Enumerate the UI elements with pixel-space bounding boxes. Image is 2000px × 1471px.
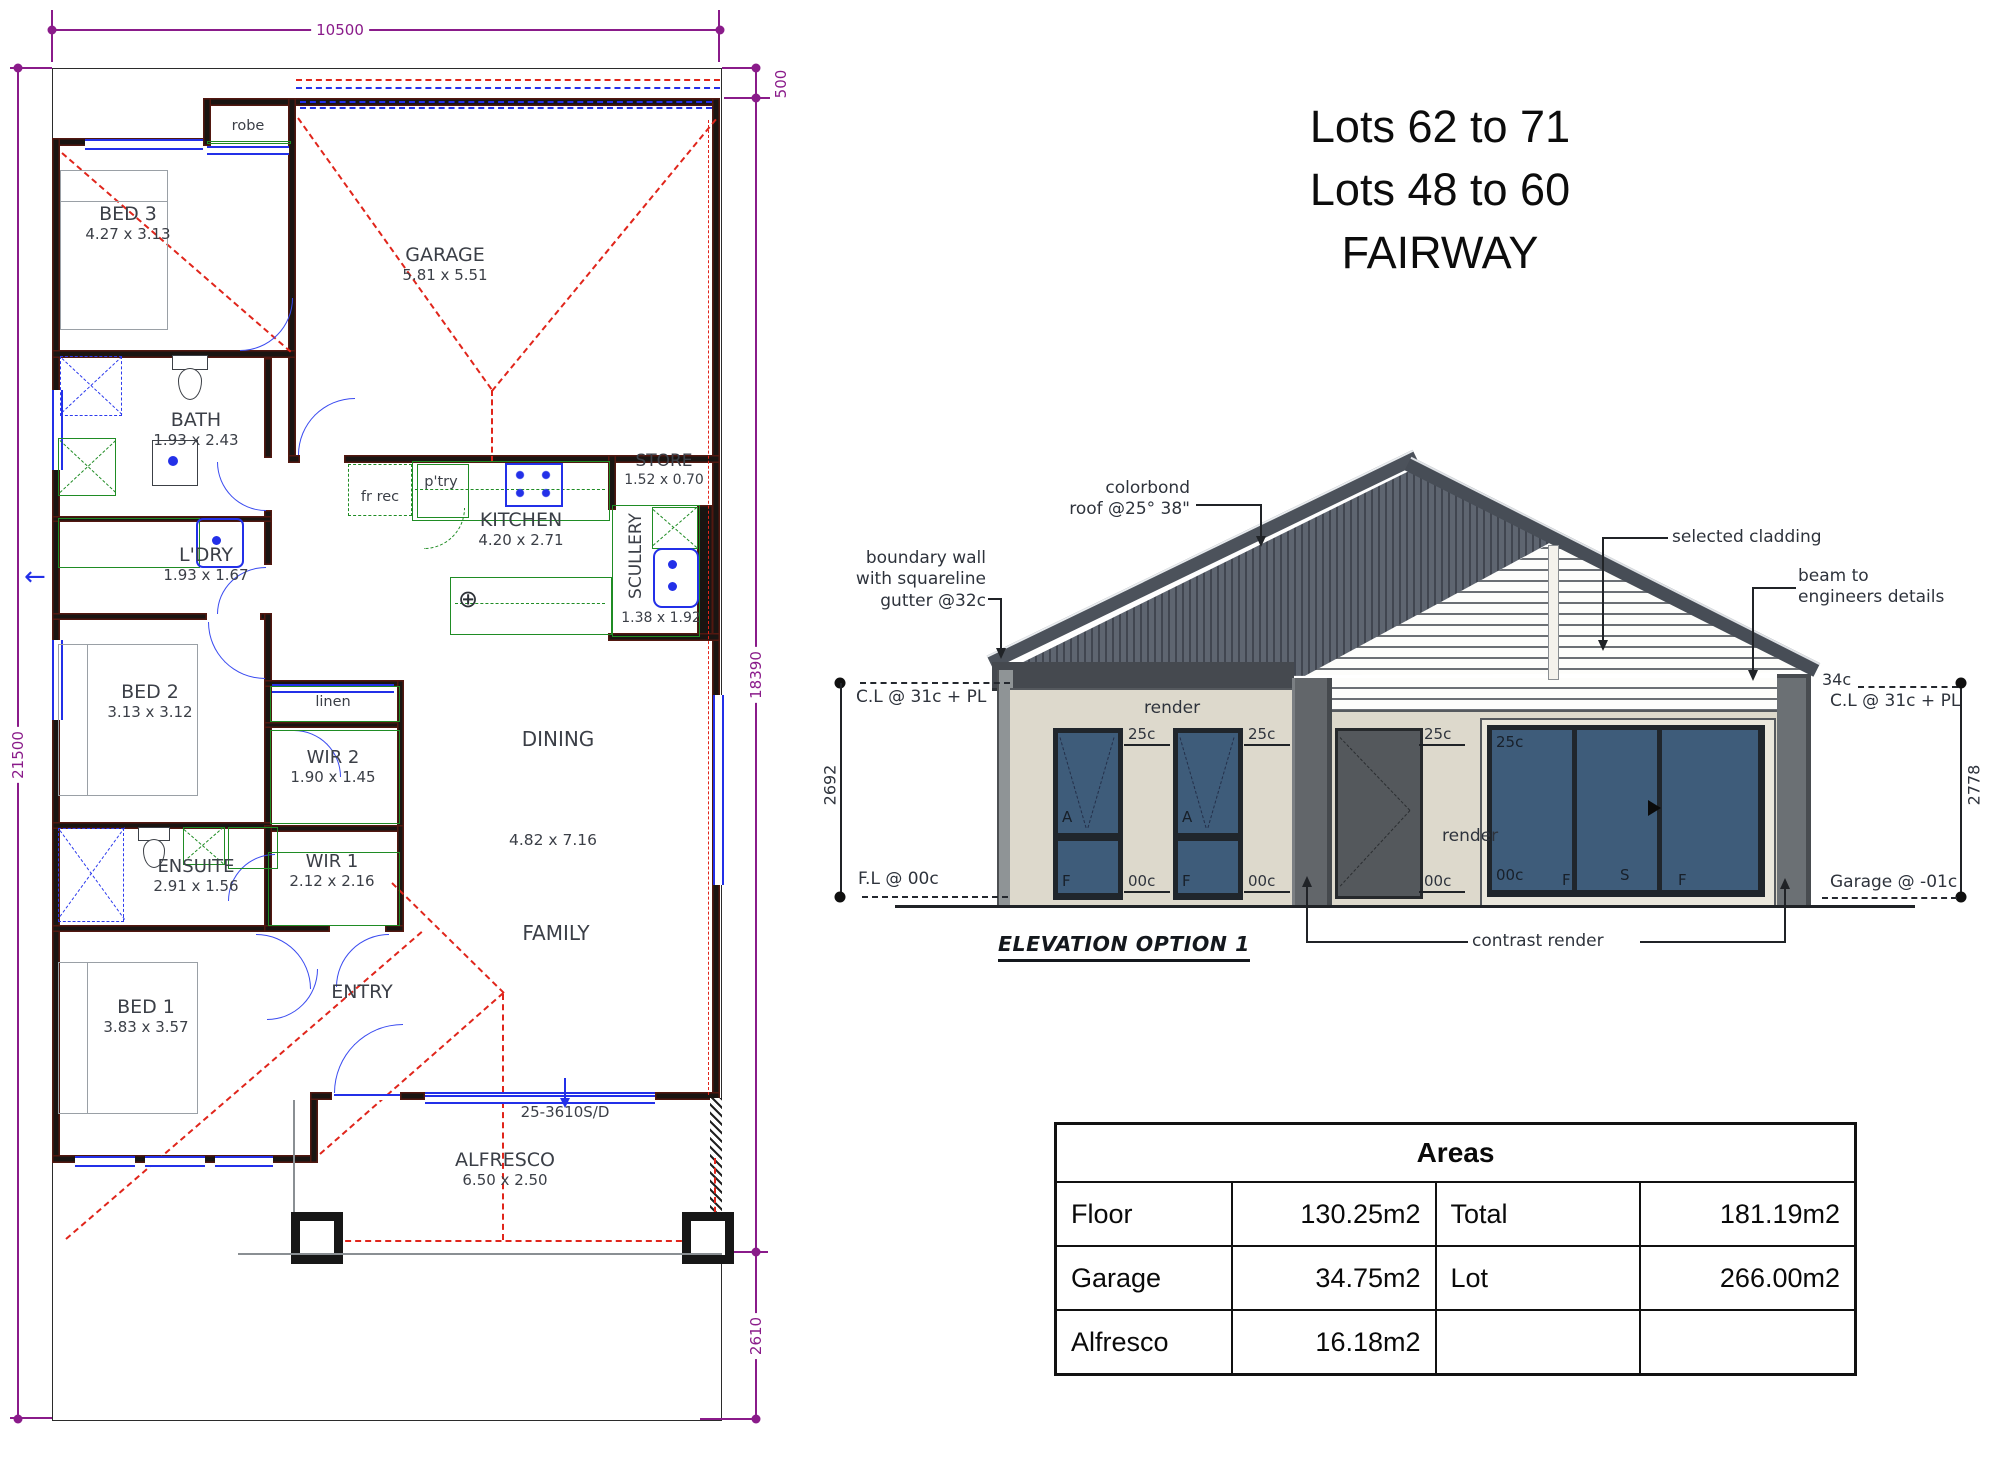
area-label: Total xyxy=(1436,1182,1640,1246)
leader-line xyxy=(1784,886,1786,943)
entry-door xyxy=(1335,728,1423,899)
room-name: KITCHEN xyxy=(478,510,563,532)
boundary-roof-line xyxy=(708,120,709,1095)
room-name: ALFRESCO xyxy=(455,1150,555,1172)
window xyxy=(85,139,203,150)
title-line-3: FAIRWAY xyxy=(1150,221,1730,284)
sliding-door-rail xyxy=(425,1095,655,1097)
wall xyxy=(310,1092,318,1163)
roof-line xyxy=(491,390,493,462)
dim-right-value: 18390 xyxy=(747,647,765,703)
callout-contrast: contrast render xyxy=(1472,931,1604,952)
basin-drain xyxy=(168,456,178,466)
window-tag-fixed: F xyxy=(1062,872,1071,890)
cladding-band xyxy=(1332,678,1777,714)
callout-text: beam to xyxy=(1798,566,1944,587)
parapet-line xyxy=(1858,686,1958,688)
area-value: 130.25m2 xyxy=(1232,1182,1436,1246)
sliding-arrow xyxy=(1648,800,1661,816)
wall xyxy=(52,925,280,932)
table-row: Floor 130.25m2 Total 181.19m2 xyxy=(1056,1182,1856,1246)
leader-line xyxy=(1308,941,1468,943)
room-name: GARAGE xyxy=(402,245,487,267)
leader-line xyxy=(1752,587,1754,673)
island-sink-symbol: ⊕ xyxy=(458,585,478,613)
wall xyxy=(400,1092,425,1100)
boundary-wall-hatch xyxy=(710,1098,722,1216)
room-size: 6.50 x 2.50 xyxy=(455,1172,555,1189)
garage-door-line xyxy=(300,107,712,109)
ceiling-level-line xyxy=(860,682,1010,684)
leader-arrow xyxy=(1256,536,1266,547)
alfresco-post xyxy=(682,1212,734,1264)
room-label-entry: ENTRY xyxy=(331,982,392,1004)
window-tag-awning: A xyxy=(1062,808,1072,826)
bed-pillow xyxy=(60,170,168,202)
sill-mark-line xyxy=(1244,891,1290,893)
scullery-sink xyxy=(653,548,699,608)
callout-text: gutter @32c xyxy=(856,591,986,612)
head-mark-line xyxy=(1124,744,1170,746)
leader-line xyxy=(1260,504,1262,538)
wall xyxy=(712,98,720,1100)
title-line-2: Lots 48 to 60 xyxy=(1150,158,1730,221)
window-tag-fixed: F xyxy=(1182,872,1191,890)
leader-arrow xyxy=(1302,876,1312,887)
room-label-ptry: p'try xyxy=(424,474,457,491)
level-dot xyxy=(835,892,846,903)
room-label-family: FAMILY xyxy=(522,922,589,945)
dim-left-value: 21500 xyxy=(9,727,27,783)
wall xyxy=(264,825,404,832)
head-mark-line xyxy=(1419,744,1465,746)
room-name: BED 1 xyxy=(103,997,188,1019)
setback-line xyxy=(296,79,720,81)
room-label-wir1: WIR 12.12 x 2.16 xyxy=(289,852,374,890)
window-tag-awning: A xyxy=(1182,808,1192,826)
callout-cladding: selected cladding xyxy=(1672,527,1822,548)
bed-pillow xyxy=(58,644,88,796)
room-size: 1.52 x 0.70 xyxy=(624,472,704,488)
wall-height-dim: 2692 xyxy=(821,765,840,806)
room-label-fr-rec: fr rec xyxy=(361,489,399,506)
leader-line xyxy=(1640,941,1784,943)
cooktop xyxy=(505,463,563,507)
eave-line xyxy=(238,1253,722,1255)
area-value: 181.19m2 xyxy=(1640,1182,1856,1246)
contrast-pillar xyxy=(1777,674,1811,906)
callout-colorbond: colorbond roof @25° 38" xyxy=(1069,478,1190,521)
leader-arrow xyxy=(1598,640,1608,651)
window-tag-fixed: F xyxy=(1678,871,1687,889)
room-size: 1.93 x 2.43 xyxy=(153,432,238,449)
room-size: 2.12 x 2.16 xyxy=(289,873,374,890)
alfresco-edge-line xyxy=(295,1240,722,1242)
room-size: 3.13 x 3.12 xyxy=(107,704,192,721)
leader-arrow xyxy=(996,648,1006,659)
leader-line xyxy=(1602,537,1604,643)
room-label-bed2: BED 23.13 x 3.12 xyxy=(107,682,192,721)
table-row: Alfresco 16.18m2 xyxy=(1056,1310,1856,1375)
room-label-ldry: L'DRY1.93 x 1.67 xyxy=(163,545,248,584)
sill-mark: 00c xyxy=(1128,872,1155,891)
title-line-1: Lots 62 to 71 xyxy=(1150,95,1730,158)
wall xyxy=(264,722,404,728)
area-label: Floor xyxy=(1056,1182,1232,1246)
room-size: 4.27 x 3.13 xyxy=(85,226,170,243)
wall-height-dim: 2778 xyxy=(1965,765,1984,806)
sill-mark: 00c xyxy=(1424,872,1451,891)
elevation-title: ELEVATION OPTION 1 xyxy=(998,932,1250,962)
drawing-sheet: 10500 21500 500 18390 2610 xyxy=(0,0,2000,1471)
window-tag-fixed: F xyxy=(1562,871,1571,889)
ceiling-level-label: C.L @ 31c + PL xyxy=(856,687,986,708)
head-mark-line xyxy=(1244,744,1290,746)
room-label-bed3: BED 34.27 x 3.13 xyxy=(85,204,170,243)
ground-line xyxy=(895,905,1915,908)
room-name: WIR 1 xyxy=(289,852,374,873)
dim-dot xyxy=(716,26,725,35)
leader-arrow xyxy=(1780,878,1790,889)
alfresco-post xyxy=(291,1212,343,1264)
room-size: 1.93 x 1.67 xyxy=(163,567,248,584)
room-label-wir2: WIR 21.90 x 1.45 xyxy=(290,748,375,786)
area-label: Garage xyxy=(1056,1246,1232,1310)
wall xyxy=(52,613,207,620)
dim-dot xyxy=(14,1415,23,1424)
room-size-scullery: 1.38 x 1.92 xyxy=(621,610,701,626)
dim-line xyxy=(1960,682,1962,898)
room-label-linen: linen xyxy=(315,694,350,711)
room-size: 2.91 x 1.56 xyxy=(153,878,238,895)
robe-shelf xyxy=(207,141,291,144)
callout-text: engineers details xyxy=(1798,587,1944,608)
room-size-dining: 4.82 x 7.16 xyxy=(509,832,597,850)
window xyxy=(713,695,724,885)
room-label-kitchen: KITCHEN4.20 x 2.71 xyxy=(478,510,563,549)
dim-ext xyxy=(51,10,53,62)
window-sill-mark: 00c xyxy=(1496,866,1523,884)
table-row: Garage 34.75m2 Lot 266.00m2 xyxy=(1056,1246,1856,1310)
gable-post xyxy=(1548,545,1559,680)
room-label-robe: robe xyxy=(232,118,265,135)
callout-beam: beam to engineers details xyxy=(1798,566,1944,609)
window-glass xyxy=(1577,730,1657,890)
dim-ext xyxy=(10,1417,52,1419)
dim-ext xyxy=(718,10,720,62)
floor-level-label: F.L @ 00c xyxy=(858,869,939,890)
render-label: render xyxy=(1442,826,1498,847)
room-label-alfresco: ALFRESCO6.50 x 2.50 xyxy=(455,1150,555,1189)
roof-line xyxy=(502,994,504,1092)
room-size: 4.20 x 2.71 xyxy=(478,532,563,549)
room-label-bed1: BED 13.83 x 3.57 xyxy=(103,997,188,1036)
head-mark: 25c xyxy=(1424,725,1451,744)
sill-mark-line xyxy=(1124,891,1170,893)
wall xyxy=(264,358,272,458)
callout-text: colorbond xyxy=(1069,478,1190,499)
room-name: ENSUITE xyxy=(153,857,238,878)
room-name: BED 2 xyxy=(107,682,192,704)
sink-drain xyxy=(668,560,677,569)
window xyxy=(75,1156,135,1167)
room-name: L'DRY xyxy=(163,545,248,567)
door-threshold xyxy=(334,1094,400,1100)
callout-text: boundary wall xyxy=(856,548,986,569)
wall xyxy=(385,925,404,932)
leader-line xyxy=(1306,884,1308,943)
dim-offset-value: 500 xyxy=(772,66,790,103)
robe-door xyxy=(207,146,289,155)
area-label: Lot xyxy=(1436,1246,1640,1310)
room-label-garage: GARAGE5.81 x 5.51 xyxy=(402,245,487,284)
leader-line xyxy=(1000,598,1002,650)
area-value xyxy=(1640,1310,1856,1375)
sill-mark: 00c xyxy=(1248,872,1275,891)
window-head-mark: 25c xyxy=(1496,733,1523,751)
room-size: 1.90 x 1.45 xyxy=(290,769,375,786)
area-value: 16.18m2 xyxy=(1232,1310,1436,1375)
room-label-scullery: SCULLERY xyxy=(626,513,646,599)
render-label: render xyxy=(1144,698,1200,719)
dim-line xyxy=(840,683,842,898)
pantry-cupboard xyxy=(417,464,469,518)
garage-level-line xyxy=(1822,897,1957,899)
window xyxy=(215,1156,273,1167)
dim-right-bottom-value: 2610 xyxy=(747,1313,765,1359)
room-size: 3.83 x 3.57 xyxy=(103,1019,188,1036)
contrast-pillar xyxy=(1292,678,1332,906)
title-block: Lots 62 to 71 Lots 48 to 60 FAIRWAY xyxy=(1150,95,1730,284)
callout-text: roof @25° 38" xyxy=(1069,499,1190,520)
wall xyxy=(203,98,211,146)
areas-table-title: Areas xyxy=(1056,1124,1856,1183)
wall xyxy=(310,1092,332,1100)
sliding-door-code: 25-3610S/D xyxy=(521,1104,610,1121)
area-label: Alfresco xyxy=(1056,1310,1232,1375)
room-name: STORE xyxy=(624,452,704,472)
garage-door-line xyxy=(300,101,712,103)
room-label-ensuite: ENSUITE2.91 x 1.56 xyxy=(153,857,238,895)
sill-mark-line xyxy=(1419,891,1465,893)
leader-line xyxy=(1602,537,1668,539)
head-mark: 25c xyxy=(1248,725,1275,744)
sink-drain xyxy=(668,582,677,591)
area-value: 266.00m2 xyxy=(1640,1246,1856,1310)
dim-ext xyxy=(10,67,52,69)
wall xyxy=(288,455,300,463)
door-swing-arrow-stem xyxy=(564,1078,566,1098)
ldry-exit-arrow: ← xyxy=(24,562,46,592)
window-tag-sliding: S xyxy=(1620,866,1630,884)
callout-boundary: boundary wall with squareline gutter @32… xyxy=(856,548,986,612)
room-label-bath: BATH1.93 x 2.43 xyxy=(153,410,238,449)
callout-text: with squareline xyxy=(856,569,986,590)
dim-top-value: 10500 xyxy=(311,21,369,39)
room-name: BATH xyxy=(153,410,238,432)
bed-pillow xyxy=(58,962,88,1114)
wall xyxy=(288,98,296,462)
wall xyxy=(264,925,330,932)
dim-ext xyxy=(724,97,770,99)
dim-line-top xyxy=(52,29,720,31)
dim-line-right xyxy=(755,68,757,1419)
room-label-store: STORE1.52 x 0.70 xyxy=(624,452,704,488)
dim-ext xyxy=(700,1418,760,1420)
areas-table: Areas Floor 130.25m2 Total 181.19m2 Gara… xyxy=(1054,1122,1857,1376)
dim-ext xyxy=(722,67,760,69)
floor-level-line xyxy=(862,896,1008,898)
room-name: WIR 2 xyxy=(290,748,375,769)
head-mark: 25c xyxy=(1128,725,1155,744)
window xyxy=(145,1156,205,1167)
gutter xyxy=(992,662,1294,691)
room-name: BED 3 xyxy=(85,204,170,226)
leader-line xyxy=(1752,587,1796,589)
parapet-mark: 34c xyxy=(1822,670,1851,690)
area-value: 34.75m2 xyxy=(1232,1246,1436,1310)
area-label xyxy=(1436,1310,1640,1375)
setback-line-blue xyxy=(296,87,720,89)
room-size: 5.81 x 5.51 xyxy=(402,267,487,284)
garage-level-label: Garage @ -01c xyxy=(1830,872,1957,893)
leader-arrow xyxy=(1748,670,1758,681)
room-label-dining: DINING xyxy=(522,728,595,751)
window-glass xyxy=(1662,730,1758,890)
leader-line xyxy=(1196,504,1262,506)
level-dot xyxy=(1956,678,1967,689)
ceiling-level-label: C.L @ 31c + PL xyxy=(1830,691,1960,712)
